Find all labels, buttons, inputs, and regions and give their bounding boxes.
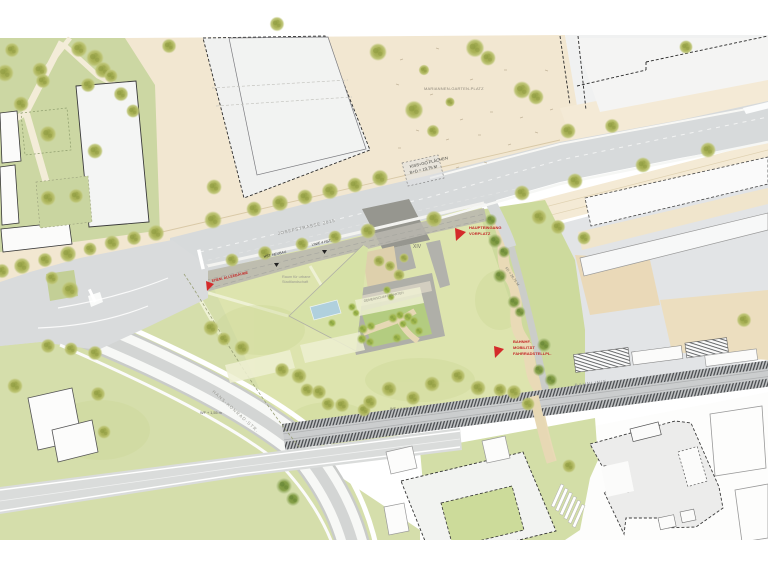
svg-text:Raum für urbane: Raum für urbane [282, 275, 311, 279]
svg-text:FAHRRADSTELLPL.: FAHRRADSTELLPL. [513, 351, 551, 356]
svg-text:MARIANNEN-GARTEN-PLATZ: MARIANNEN-GARTEN-PLATZ [424, 86, 484, 91]
svg-text:WF + 1,55 m: WF + 1,55 m [390, 407, 412, 411]
svg-text:WF + 1,55 m: WF + 1,55 m [200, 411, 222, 415]
svg-text:MOBILITÄT: MOBILITÄT [513, 345, 535, 350]
svg-text:Stadtlandschaft: Stadtlandschaft [282, 280, 309, 284]
svg-text:XIV: XIV [413, 244, 422, 250]
svg-text:VORPLATZ: VORPLATZ [469, 231, 491, 236]
svg-text:BAHNHF.: BAHNHF. [513, 339, 531, 344]
svg-text:HAUPTEINGANG: HAUPTEINGANG [469, 225, 501, 230]
